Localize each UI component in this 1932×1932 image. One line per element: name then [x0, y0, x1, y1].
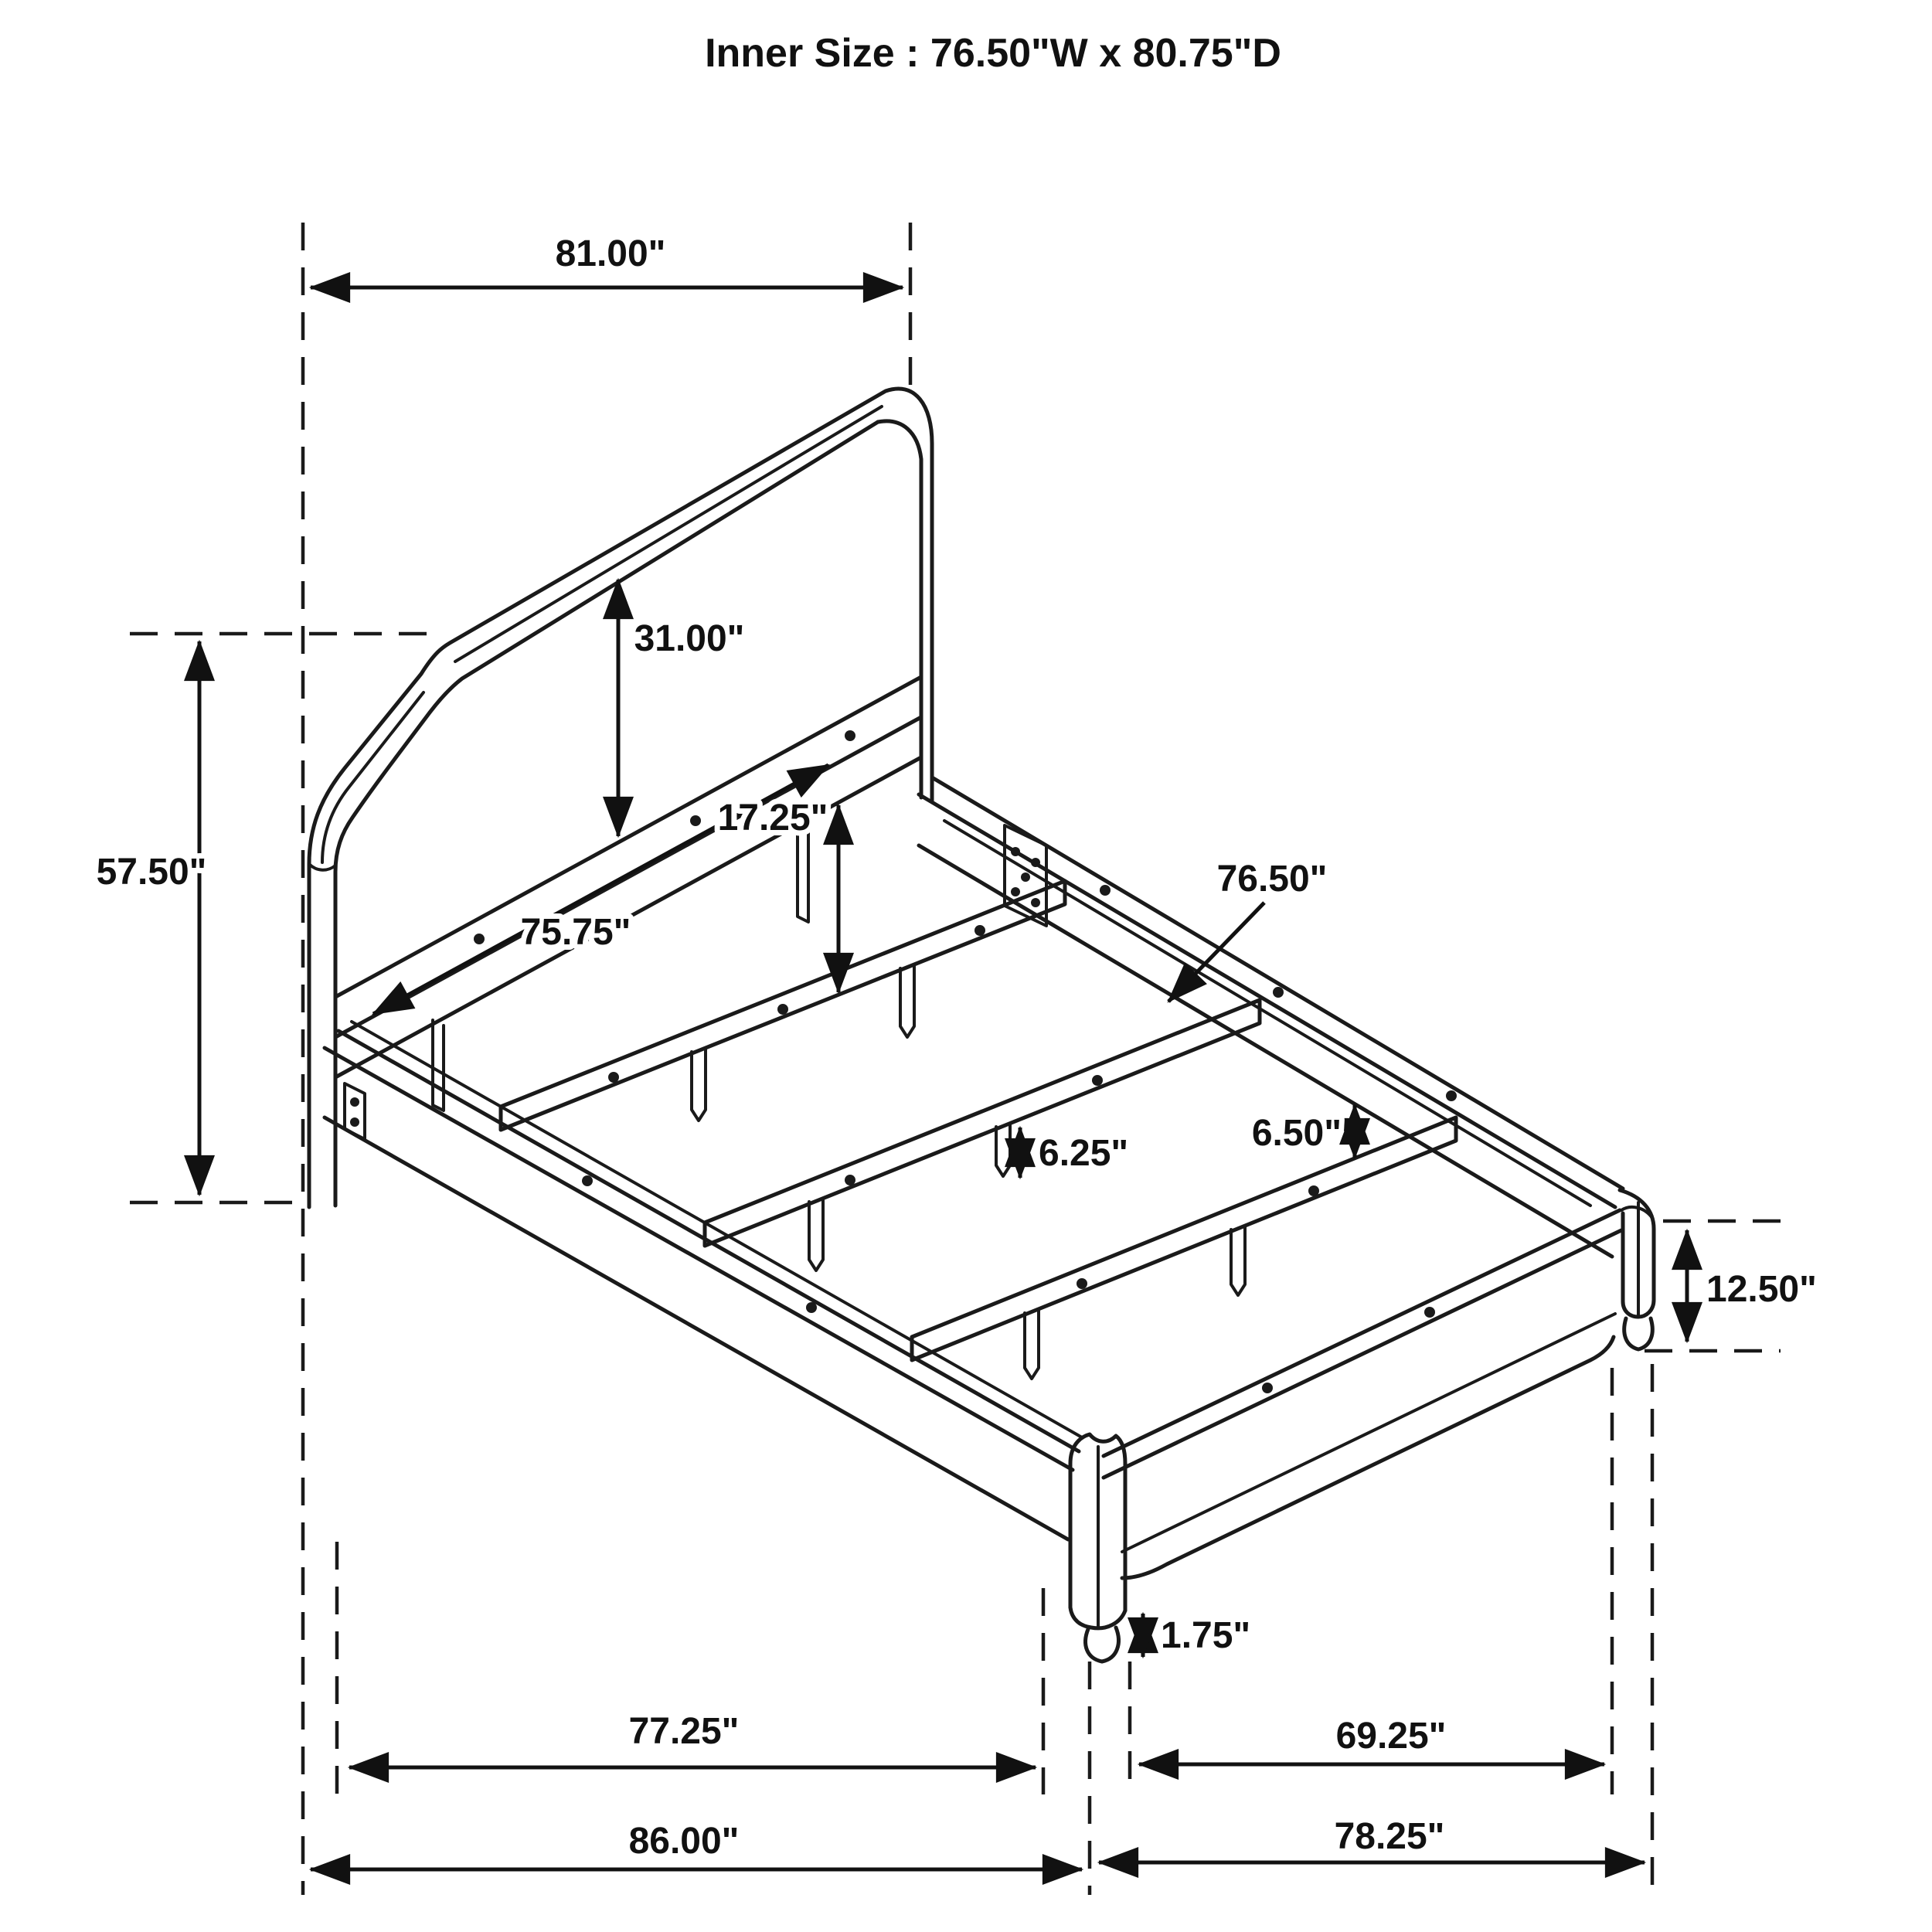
bed-dimension-diagram-page: Inner Size : 76.50"W x 80.75"D 81.00" 57… — [0, 0, 1932, 1932]
slat-length-label: 76.50" — [1217, 859, 1328, 900]
overall-depth-label: 86.00" — [629, 1821, 740, 1862]
footboard-width-label: 78.25" — [1335, 1816, 1445, 1857]
rail-clearance-label: 6.50" — [1252, 1113, 1342, 1154]
bed-frame-drawing — [309, 389, 1654, 1662]
diagram-title: Inner Size : 76.50"W x 80.75"D — [705, 31, 1281, 76]
slat-leg-height-label: 6.25" — [1039, 1133, 1128, 1174]
foot-span-label: 69.25" — [1336, 1716, 1447, 1757]
headboard-panel-height-label: 31.00" — [634, 618, 745, 659]
headboard-clearance-label: 17.25" — [718, 798, 828, 838]
extension-lines — [130, 223, 1781, 1895]
bed-rails — [325, 777, 1623, 1539]
headboard-inner-width-label: 75.75" — [521, 912, 631, 953]
foot-height-label: 1.75" — [1161, 1615, 1250, 1656]
headboard-width-label: 81.00" — [556, 233, 666, 274]
inner-rail-length-label: 77.25" — [629, 1711, 740, 1752]
headboard-height-label: 57.50" — [97, 852, 207, 893]
bed-dimension-diagram: Inner Size : 76.50"W x 80.75"D 81.00" 57… — [0, 0, 1932, 1932]
footboard-height-label: 12.50" — [1706, 1269, 1817, 1310]
headboard — [309, 389, 1046, 1207]
